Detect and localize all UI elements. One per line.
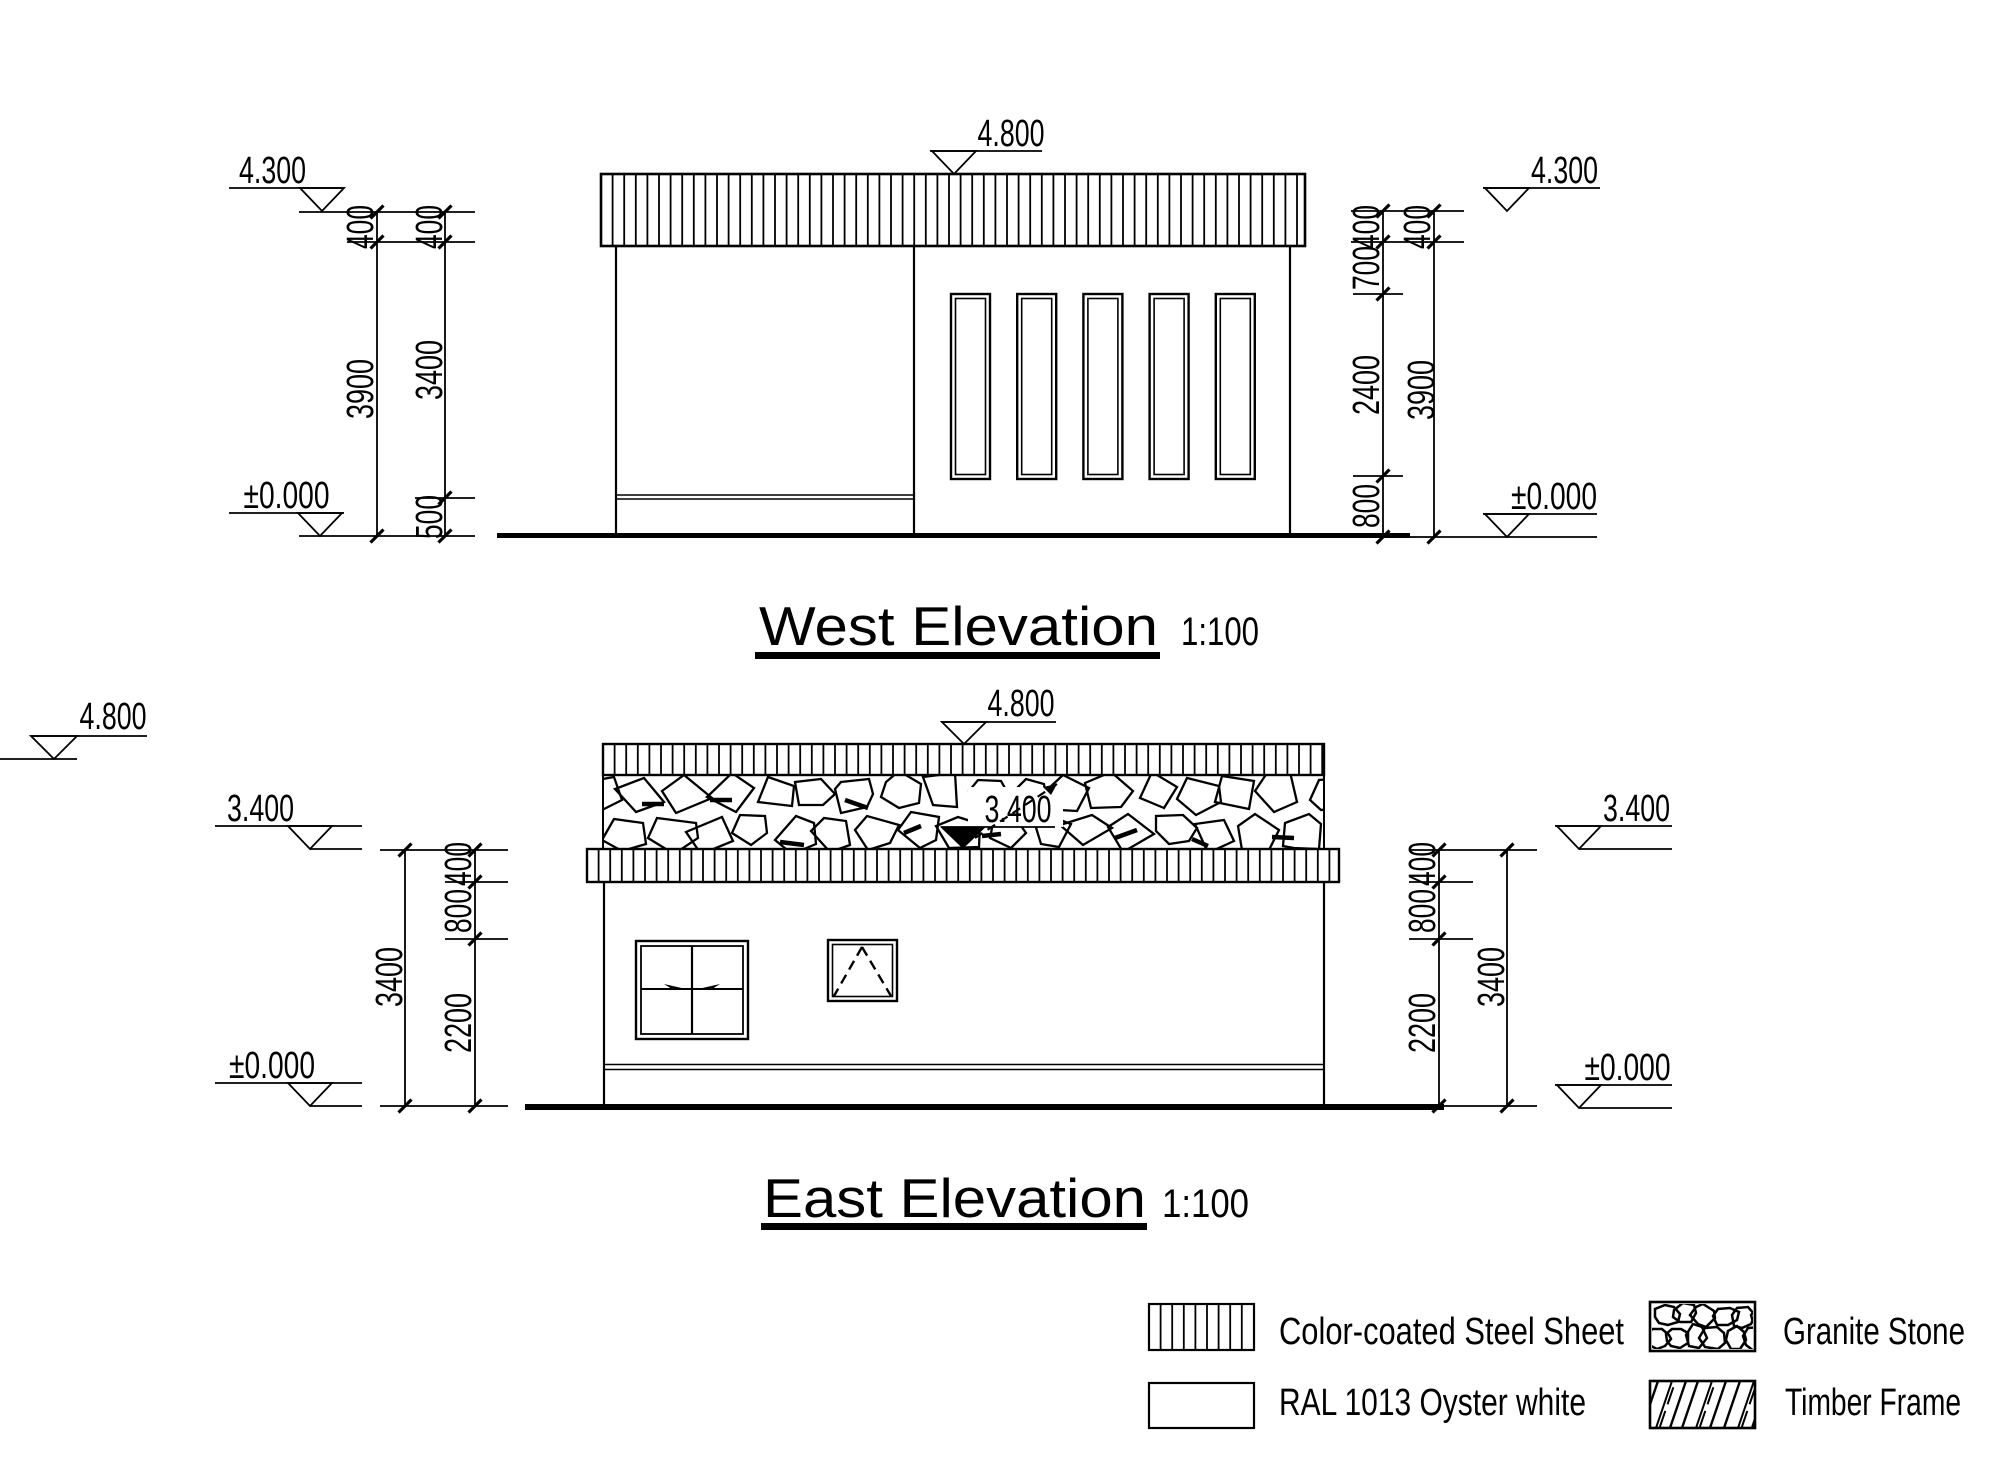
svg-text:3400: 3400 [369, 947, 411, 1007]
svg-text:4.300: 4.300 [1531, 150, 1598, 192]
svg-text:±0.000: ±0.000 [1511, 476, 1597, 518]
svg-text:800: 800 [1402, 889, 1444, 933]
svg-text:1:100: 1:100 [1162, 1182, 1249, 1226]
svg-text:700: 700 [1346, 246, 1388, 290]
svg-text:3.400: 3.400 [985, 789, 1052, 831]
svg-text:400: 400 [1346, 205, 1388, 249]
svg-text:±0.000: ±0.000 [1585, 1047, 1671, 1089]
svg-text:Color-coated Steel Sheet: Color-coated Steel Sheet [1279, 1311, 1624, 1353]
svg-text:4.800: 4.800 [988, 683, 1055, 725]
svg-text:800: 800 [438, 889, 480, 933]
svg-text:Timber Frame: Timber Frame [1785, 1382, 1961, 1424]
svg-text:1:100: 1:100 [1181, 610, 1259, 654]
svg-text:3900: 3900 [340, 359, 382, 419]
svg-text:East Elevation: East Elevation [763, 1167, 1146, 1229]
svg-text:4.800: 4.800 [80, 696, 147, 738]
svg-text:400: 400 [438, 842, 480, 886]
svg-text:3.400: 3.400 [1603, 788, 1670, 830]
svg-text:400: 400 [1397, 205, 1439, 249]
svg-text:3400: 3400 [409, 340, 451, 400]
svg-text:3900: 3900 [1401, 360, 1443, 420]
svg-text:4.800: 4.800 [978, 113, 1045, 155]
svg-text:±0.000: ±0.000 [229, 1045, 315, 1087]
svg-text:400: 400 [340, 205, 382, 249]
svg-text:400: 400 [409, 205, 451, 249]
svg-text:2200: 2200 [1402, 993, 1444, 1053]
svg-text:±0.000: ±0.000 [244, 475, 330, 517]
svg-text:3400: 3400 [1471, 947, 1513, 1007]
svg-text:Granite Stone: Granite Stone [1783, 1311, 1965, 1353]
svg-text:4.300: 4.300 [239, 150, 306, 192]
svg-text:2200: 2200 [438, 993, 480, 1053]
svg-text:West Elevation: West Elevation [759, 595, 1158, 657]
svg-text:2400: 2400 [1346, 355, 1388, 415]
svg-text:500: 500 [409, 495, 451, 539]
svg-text:800: 800 [1346, 484, 1388, 528]
svg-text:3.400: 3.400 [227, 788, 294, 830]
svg-text:400: 400 [1402, 842, 1444, 886]
svg-text:RAL 1013 Oyster white: RAL 1013 Oyster white [1279, 1382, 1586, 1424]
